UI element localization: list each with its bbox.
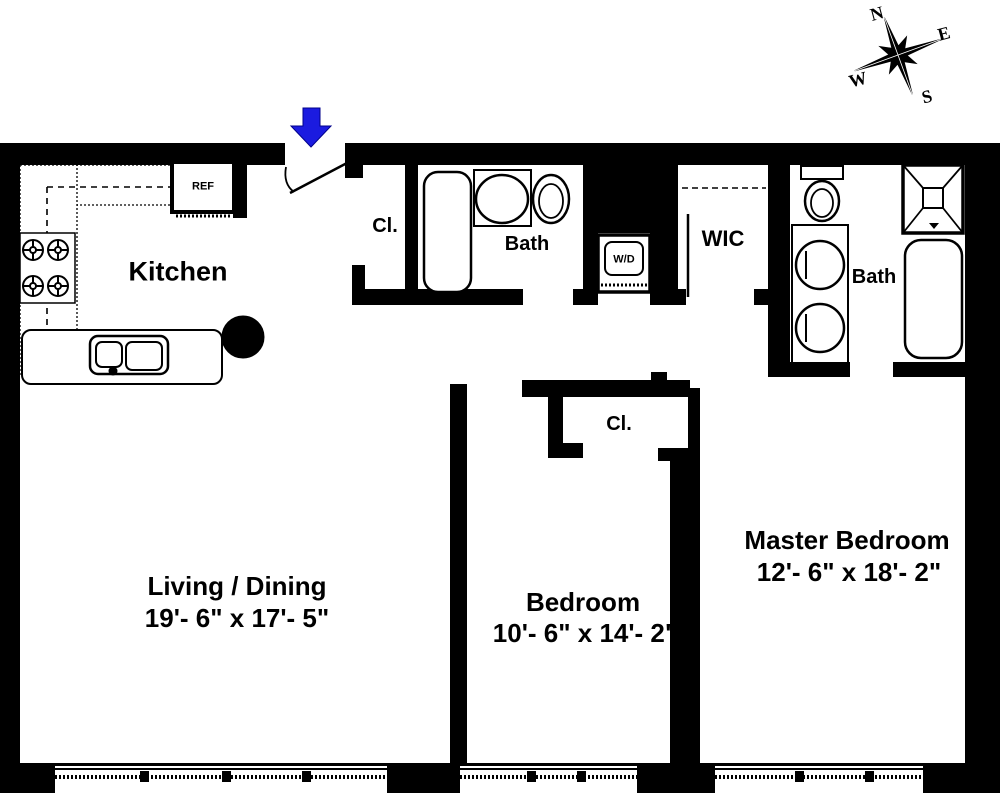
vanity-sink [796, 241, 844, 289]
faucet-icon [110, 368, 117, 375]
wall-segment [548, 443, 583, 458]
windows [55, 766, 923, 793]
wall-segment [0, 143, 20, 793]
window [460, 766, 637, 793]
wall-segment [650, 165, 678, 305]
washer-dryer-label: W/D [613, 255, 634, 266]
wall-segment [345, 143, 1000, 165]
wall-segment [573, 289, 598, 305]
wall-segment [965, 143, 1000, 793]
wall-segment [768, 165, 790, 377]
toilet [801, 166, 843, 221]
walls [0, 143, 1000, 793]
wall-segment [768, 362, 850, 377]
entry-arrow-icon [291, 108, 331, 147]
window [715, 766, 923, 793]
wall-segment [754, 289, 768, 305]
wall-segment [522, 380, 690, 397]
stove [20, 233, 75, 303]
compass-rose-icon [841, 2, 955, 111]
floor-plan: Kitchen REF Cl. Bath W/D WIC Bath Cl. Li… [0, 0, 1000, 793]
floor-plan-drawing [0, 0, 1000, 793]
entry-door-leaf [290, 163, 347, 193]
wall-segment [405, 165, 418, 305]
room-label-wic: WIC [702, 228, 745, 250]
room-label-bath2: Bath [852, 267, 896, 287]
room-label-entry-closet: Cl. [372, 216, 398, 236]
room-label-kitchen: Kitchen [128, 259, 227, 286]
burner-icon [48, 276, 68, 296]
wall-segment [670, 448, 700, 765]
wall-segment [678, 289, 686, 305]
bath2-fixtures [792, 165, 963, 363]
toilet [533, 175, 569, 223]
room-label-master-bedroom: Master Bedroom [744, 527, 949, 553]
room-label-bedroom-closet: Cl. [606, 414, 632, 434]
wall-segment [450, 384, 467, 765]
entry-door-swing [285, 167, 294, 192]
kitchen-sink [90, 336, 168, 375]
vanity-sink [796, 304, 844, 352]
room-dimensions-bedroom: 10'- 6" x 14'- 2" [493, 620, 677, 646]
column [222, 316, 264, 358]
room-label-living: Living / Dining [147, 573, 326, 599]
room-label-bath1: Bath [505, 234, 549, 254]
wall-segment [345, 165, 363, 178]
bathtub [424, 172, 471, 292]
bath1-fixtures [424, 170, 569, 292]
window [55, 766, 387, 793]
wall-segment [0, 143, 285, 165]
room-label-bedroom: Bedroom [526, 589, 640, 615]
refrigerator-label: REF [192, 182, 214, 193]
wall-segment [548, 397, 563, 445]
wall-segment [688, 388, 700, 450]
wall-segment [893, 362, 965, 377]
shower [903, 165, 963, 233]
burner-icon [23, 276, 43, 296]
burner-icon [23, 240, 43, 260]
wall-segment [651, 372, 667, 381]
bathroom-sink [474, 170, 531, 226]
room-dimensions-living: 19'- 6" x 17'- 5" [145, 605, 329, 631]
bathtub [905, 240, 962, 358]
burner-icon [48, 240, 68, 260]
room-dimensions-master-bedroom: 12'- 6" x 18'- 2" [757, 559, 941, 585]
